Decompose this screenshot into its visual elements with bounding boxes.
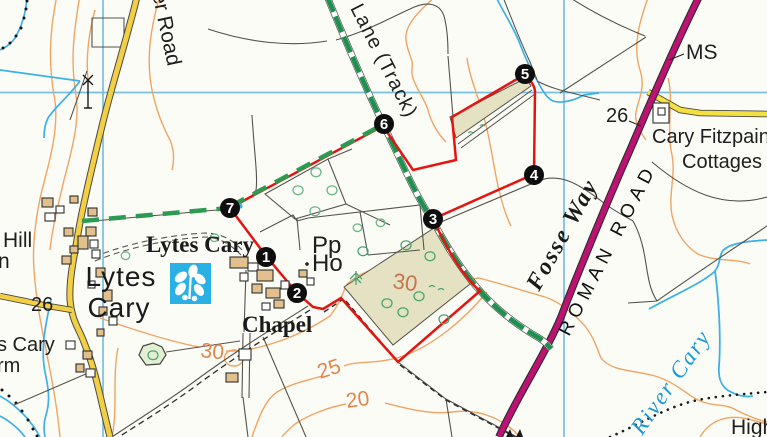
svg-text:Ho: Ho xyxy=(312,250,343,277)
svg-text:7: 7 xyxy=(226,200,234,217)
svg-text:MS: MS xyxy=(686,41,718,64)
svg-text:Hill: Hill xyxy=(3,229,32,252)
svg-text:4: 4 xyxy=(530,167,539,184)
svg-text:5: 5 xyxy=(521,66,529,83)
svg-text:26: 26 xyxy=(606,105,628,127)
svg-text:30: 30 xyxy=(391,268,419,296)
svg-text:2: 2 xyxy=(293,285,301,302)
svg-text:Chapel: Chapel xyxy=(242,312,312,337)
svg-text:20: 20 xyxy=(344,387,370,413)
svg-text:Lytes Cary: Lytes Cary xyxy=(146,232,254,257)
svg-text:Cary Fitzpaine: Cary Fitzpaine xyxy=(652,126,767,148)
svg-text:6: 6 xyxy=(380,116,388,133)
svg-text:High: High xyxy=(731,416,767,437)
svg-text:rm: rm xyxy=(0,355,20,377)
svg-text:n: n xyxy=(0,250,10,273)
svg-text:s Cary: s Cary xyxy=(0,334,55,356)
svg-text:Lytes: Lytes xyxy=(86,261,157,292)
svg-text:26: 26 xyxy=(31,294,53,316)
svg-text:Cottages: Cottages xyxy=(682,151,762,173)
svg-text:Cary: Cary xyxy=(87,292,150,323)
svg-text:1: 1 xyxy=(262,249,270,266)
svg-text:3: 3 xyxy=(429,211,437,228)
svg-text:30: 30 xyxy=(199,339,225,364)
